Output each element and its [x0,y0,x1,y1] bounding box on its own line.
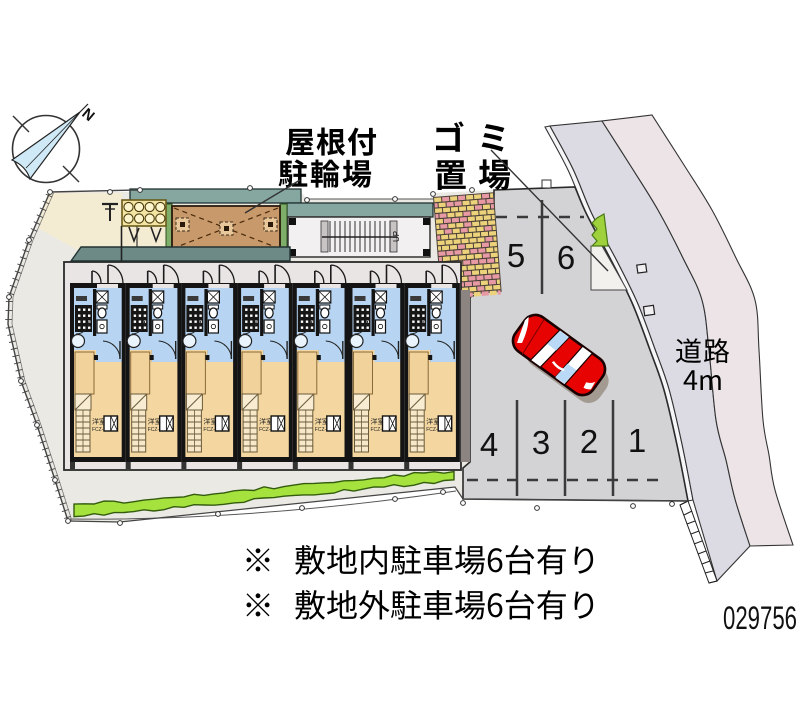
svg-text:6: 6 [557,239,575,276]
svg-text:1: 1 [628,422,646,459]
svg-text:029756: 029756 [723,600,797,636]
svg-text:UP: UP [392,231,401,242]
svg-text:4: 4 [480,426,498,463]
svg-text:3: 3 [532,424,550,461]
svg-text:2: 2 [580,423,598,460]
svg-text:5: 5 [507,237,525,274]
